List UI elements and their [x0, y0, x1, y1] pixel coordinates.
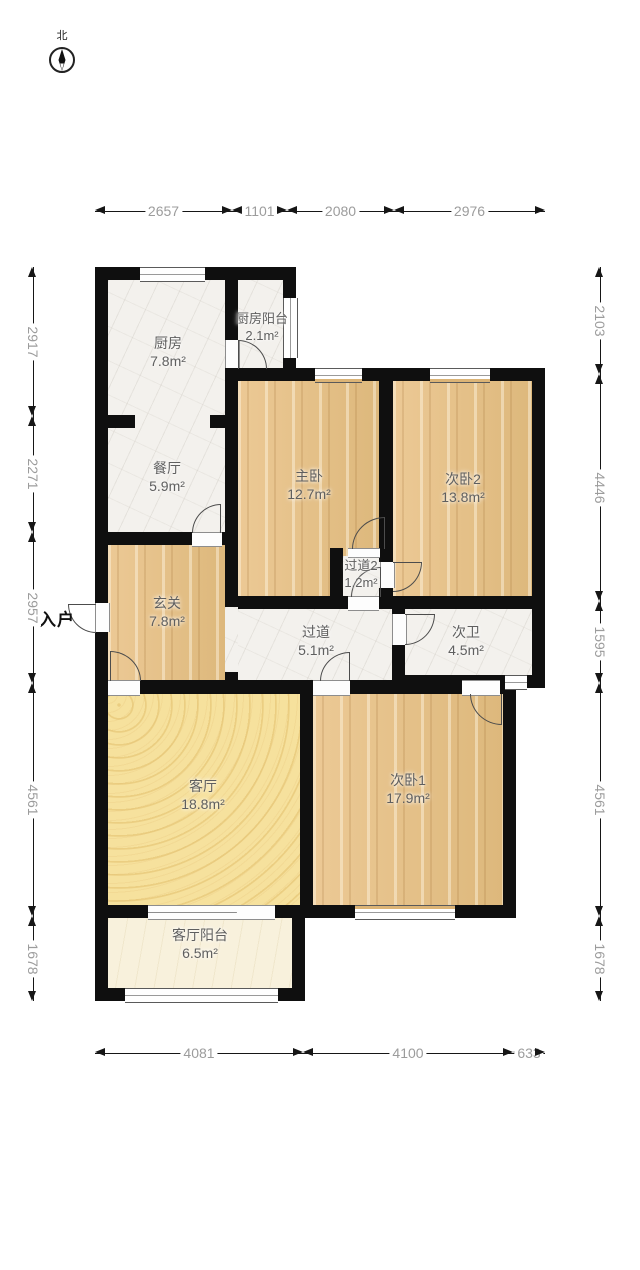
room-area: 2.1m²: [236, 328, 288, 345]
room-label-corridor2: 过道2 1.2m²: [344, 558, 377, 592]
dimension-value: 1678: [592, 940, 608, 977]
wall: [225, 368, 315, 381]
wall: [292, 918, 305, 988]
dimension-segment: 1678: [600, 916, 601, 1001]
wall: [140, 680, 313, 694]
wall: [95, 267, 140, 280]
dimension-value: 633: [514, 1045, 543, 1061]
room-area: 7.8m²: [150, 352, 186, 370]
dimension-segment: 4100: [303, 1053, 513, 1054]
dimension-segment: 633: [513, 1053, 545, 1054]
wall: [238, 596, 348, 609]
room-label-corridor: 过道 5.1m²: [298, 623, 334, 659]
dimension-segment: 2103: [600, 267, 601, 374]
room-label-bathroom: 次卫 4.5m²: [448, 623, 484, 659]
dimension-segment: 2957: [33, 532, 34, 683]
room-name: 厨房阳台: [236, 311, 288, 328]
hallway-corridor-passage: [225, 607, 238, 672]
room-area: 1.2m²: [344, 575, 377, 592]
room-label-bedroom2: 次卧2 13.8m²: [441, 470, 485, 506]
wall: [95, 415, 135, 428]
room-label-kitchen: 厨房 7.8m²: [150, 334, 186, 370]
room-label-living-room: 客厅 18.8m²: [181, 777, 225, 813]
window: [315, 368, 362, 383]
door-threshold: [313, 680, 350, 696]
room-name: 次卧1: [386, 771, 430, 789]
room-label-bedroom1: 次卧1 17.9m²: [386, 771, 430, 807]
dimension-value: 1678: [25, 940, 41, 977]
dimension-segment: 2657: [95, 211, 232, 212]
wall: [225, 381, 238, 607]
room-name: 主卧: [287, 467, 331, 485]
room-name: 客厅阳台: [172, 926, 228, 944]
dimension-value: 2917: [25, 323, 41, 360]
room-area: 5.1m²: [298, 641, 334, 659]
dimension-segment: 4446: [600, 374, 601, 601]
floorplan-canvas: 北: [0, 0, 640, 1270]
room-label-kitchen-balcony: 厨房阳台 2.1m²: [236, 311, 288, 345]
room-area: 12.7m²: [287, 485, 331, 503]
wall: [95, 267, 108, 603]
wall: [95, 632, 108, 1001]
window: [505, 675, 527, 690]
wall: [283, 280, 296, 298]
room-name: 玄关: [149, 594, 185, 612]
room-area: 4.5m²: [448, 641, 484, 659]
wall: [362, 368, 430, 381]
wall: [205, 267, 296, 280]
wall: [379, 596, 545, 609]
dimension-segment: 2976: [394, 211, 545, 212]
wall: [95, 532, 192, 545]
room-name: 客厅: [181, 777, 225, 795]
dimension-value: 4561: [592, 781, 608, 818]
dimension-segment: 4081: [95, 1053, 303, 1054]
wall: [490, 368, 545, 381]
door-threshold: [192, 532, 222, 547]
dimension-value: 4446: [592, 469, 608, 506]
dimension-value: 2957: [25, 589, 41, 626]
room-name: 过道: [298, 623, 334, 641]
door-threshold: [108, 680, 140, 696]
room-label-dining: 餐厅 5.9m²: [149, 459, 185, 495]
door-threshold: [348, 596, 379, 611]
dimension-value: 4100: [389, 1045, 426, 1061]
wall: [532, 381, 545, 688]
room-label-living-balcony: 客厅阳台 6.5m²: [172, 926, 228, 962]
room-area: 6.5m²: [172, 944, 228, 962]
room-label-hallway: 玄关 7.8m²: [149, 594, 185, 630]
dimension-value: 2271: [25, 455, 41, 492]
room-name: 次卧2: [441, 470, 485, 488]
window: [355, 905, 455, 920]
room-area: 18.8m²: [181, 795, 225, 813]
door-threshold: [95, 603, 110, 632]
room-area: 13.8m²: [441, 488, 485, 506]
dimension-value: 4081: [180, 1045, 217, 1061]
dimension-segment: 4561: [33, 683, 34, 916]
wall: [527, 675, 545, 688]
sliding-door: [148, 905, 275, 920]
wall: [278, 988, 305, 1001]
window: [430, 368, 490, 383]
dimension-segment: 2917: [33, 267, 34, 416]
dimension-value: 1595: [592, 623, 608, 660]
wall: [350, 680, 462, 694]
dimension-value: 2103: [592, 302, 608, 339]
wall: [300, 680, 313, 918]
window: [140, 267, 205, 282]
dimension-value: 4561: [25, 781, 41, 818]
wall: [455, 905, 516, 918]
wall: [95, 988, 125, 1001]
compass-icon: 北: [40, 24, 86, 82]
room-area: 5.9m²: [149, 477, 185, 495]
dimension-segment: 2271: [33, 416, 34, 532]
dimension-value: 2976: [451, 203, 488, 219]
door-threshold: [348, 548, 380, 558]
dimension-segment: 1595: [600, 601, 601, 683]
dimension-segment: 1678: [33, 916, 34, 1001]
wall: [503, 688, 516, 918]
room-name: 过道2: [344, 558, 377, 575]
dimension-value: 1101: [241, 203, 277, 219]
dimension-segment: 1101: [232, 211, 287, 212]
dimension-value: 2080: [322, 203, 359, 219]
room-area: 7.8m²: [149, 612, 185, 630]
dimension-value: 2657: [145, 203, 182, 219]
dimension-segment: 2080: [287, 211, 394, 212]
room-area: 17.9m²: [386, 789, 430, 807]
dimension-segment: 4561: [600, 683, 601, 916]
wall: [95, 905, 148, 918]
room-name: 餐厅: [149, 459, 185, 477]
room-label-master-bedroom: 主卧 12.7m²: [287, 467, 331, 503]
room-name: 厨房: [150, 334, 186, 352]
compass-north-label: 北: [57, 29, 68, 42]
window: [125, 988, 278, 1003]
entry-label: 入户: [39, 606, 75, 631]
room-name: 次卫: [448, 623, 484, 641]
